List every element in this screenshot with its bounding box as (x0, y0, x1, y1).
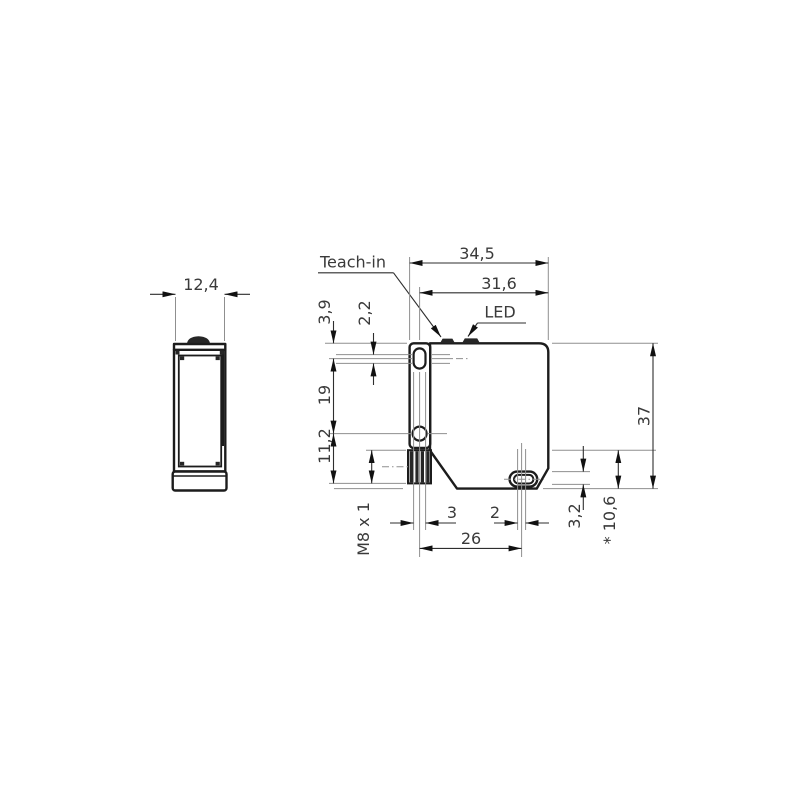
dims-right: 3,2 * 10,6 37 (543, 343, 658, 544)
side-face-inner (179, 356, 221, 467)
teach-in-button (440, 339, 455, 344)
callouts: Teach-in LED (318, 253, 526, 338)
dim-overall-height: 37 (635, 406, 654, 426)
connector-ridge (415, 451, 418, 482)
connector-ridge (410, 451, 413, 482)
corner-mark (216, 357, 220, 361)
side-view: 12,4 (150, 275, 250, 491)
led-leader (468, 323, 478, 337)
dim-slot-offset: 2,2 (355, 300, 374, 325)
dim-hole-to-connector: 11,2 (315, 428, 334, 464)
sensor-dimension-drawing: 12,4 Teach (0, 0, 800, 800)
dim-body-width: 31,6 (481, 274, 517, 293)
dim-top-to-slot: 3,9 (315, 299, 334, 324)
corner-mark (220, 351, 224, 355)
connector-ridge (426, 451, 429, 482)
label-teach-in: Teach-in (319, 253, 386, 272)
dim-hole-to-slot: 26 (461, 529, 481, 548)
led-window (462, 338, 480, 343)
corner-mark (180, 462, 184, 466)
label-led: LED (484, 303, 515, 322)
mounting-slot (414, 348, 426, 368)
front-view (408, 338, 548, 488)
corner-mark (176, 351, 180, 355)
corner-mark (216, 462, 220, 466)
front-body-outline (430, 343, 548, 488)
side-base-outline (173, 472, 227, 491)
technical-drawing-canvas: 12,4 Teach (0, 0, 800, 800)
dim-slot-width: 3 (447, 503, 457, 522)
dim-hole-spacing: 19 (315, 385, 334, 405)
dim-connector-thread: M8 x 1 (354, 502, 373, 556)
dims-top: 34,5 31,6 (410, 244, 549, 340)
corner-mark (180, 357, 184, 361)
dim-slot-play: 2 (490, 503, 500, 522)
connector-ridge (421, 451, 424, 482)
teach-in-leader (394, 273, 442, 337)
dim-side-width: 12,4 (183, 275, 219, 294)
dim-ref-height: * 10,6 (600, 496, 619, 545)
dim-slot-height: 3,2 (565, 503, 584, 528)
dim-overall-width: 34,5 (459, 244, 495, 263)
